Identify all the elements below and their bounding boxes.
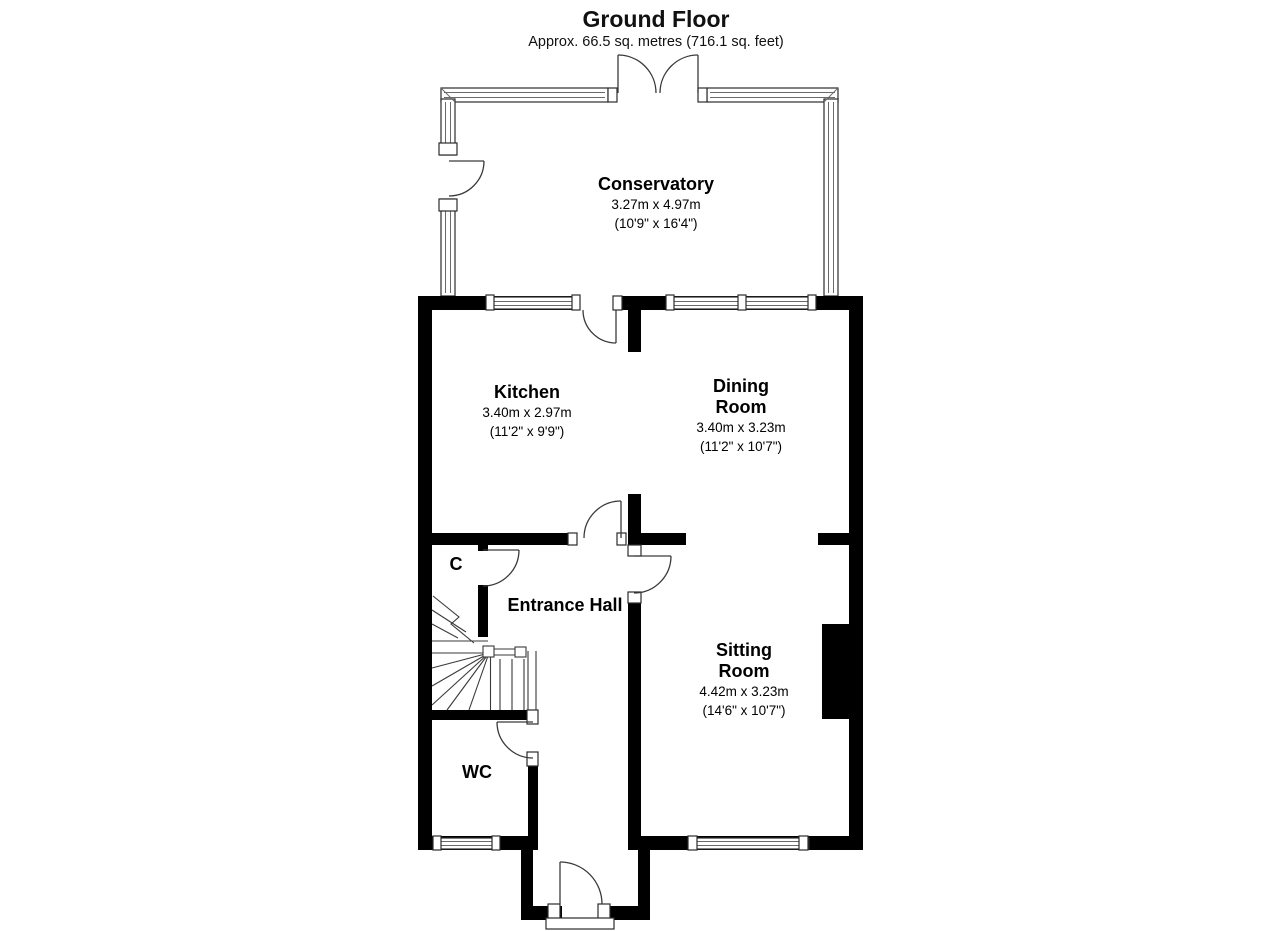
dining-sitting-stub-left (641, 533, 686, 545)
front-door-threshold (546, 918, 614, 929)
stair-handrail (483, 646, 526, 657)
wc-hall-divider (528, 766, 538, 850)
kitchen-dining-divider-lower (628, 494, 641, 545)
right-wall (849, 296, 863, 850)
window-cap (433, 836, 441, 850)
cupboard-door (483, 550, 519, 586)
kitchen-window (490, 297, 576, 309)
front-door (560, 862, 602, 904)
room-dims-imperial: (11'2" x 10'7") (696, 437, 786, 456)
room-name: Entrance Hall (500, 595, 630, 616)
stair-lower-treads (491, 651, 537, 710)
room-dims-imperial: (14'6" x 10'7") (699, 701, 789, 720)
room-dims-metric: 3.40m x 3.23m (696, 418, 786, 437)
dining-sitting-stub-right (818, 533, 849, 545)
sitting-door-jamb (628, 545, 641, 556)
room-name: WC (462, 762, 492, 783)
room-dims-imperial: (11'2" x 9'9") (482, 422, 571, 441)
wc-window (436, 838, 497, 849)
window-cap (492, 836, 500, 850)
stairs-wc-divider (432, 710, 538, 720)
room-label-sitting: Sitting Room 4.42m x 3.23m (14'6" x 10'7… (699, 640, 789, 720)
floor-plan-drawing (0, 0, 1280, 931)
newel-post (483, 646, 494, 657)
newel-post (515, 647, 526, 657)
conservatory-door-jamb (439, 199, 457, 211)
room-name: Dining Room (696, 376, 786, 418)
window-cap (738, 295, 746, 310)
kitchen-hall-divider (432, 533, 568, 545)
window-cap (666, 295, 674, 310)
hall-kitchen-door-jamb (568, 533, 577, 545)
window-cap (799, 836, 808, 850)
window-cap (808, 295, 816, 310)
kitchen-door-jamb (613, 296, 622, 310)
room-label-kitchen: Kitchen 3.40m x 2.97m (11'2" x 9'9") (482, 382, 571, 441)
kitchen-conservatory-door (583, 310, 616, 343)
french-door-jamb (608, 88, 617, 102)
room-name: Sitting Room (699, 640, 789, 682)
room-name: C (450, 554, 463, 575)
conservatory-side-door (449, 161, 484, 196)
hall-kitchen-door (584, 501, 621, 538)
glazing-top-right (707, 88, 838, 102)
room-dims-imperial: (10'9" x 16'4") (598, 214, 714, 233)
room-name: Kitchen (482, 382, 571, 403)
room-dims-metric: 3.27m x 4.97m (598, 195, 714, 214)
room-label-cupboard: C (450, 554, 463, 575)
stair-winders (432, 653, 489, 710)
glazing-top-left (441, 88, 608, 102)
french-doors (618, 55, 698, 93)
page-title: Ground Floor (583, 6, 730, 33)
window-cap (688, 836, 697, 850)
room-label-dining: Dining Room 3.40m x 3.23m (11'2" x 10'7"… (696, 376, 786, 456)
window-cap (486, 295, 494, 310)
room-dims-metric: 3.40m x 2.97m (482, 403, 571, 422)
left-wall (418, 296, 432, 850)
room-label-hall: Entrance Hall (500, 595, 630, 616)
glazing-left-lower (441, 199, 455, 296)
hall-sitting-divider (628, 601, 641, 850)
room-label-conservatory: Conservatory 3.27m x 4.97m (10'9" x 16'4… (598, 174, 714, 233)
hall-sitting-door (634, 556, 671, 593)
page-subtitle: Approx. 66.5 sq. metres (716.1 sq. feet) (528, 34, 784, 50)
cupboard-divider (478, 585, 488, 637)
sitting-window (691, 838, 809, 849)
wc-door-jamb (527, 752, 538, 766)
room-label-wc: WC (462, 762, 492, 783)
room-name: Conservatory (598, 174, 714, 195)
glazing-right (824, 99, 838, 296)
floor-plan: Ground Floor Approx. 66.5 sq. metres (71… (0, 0, 1280, 931)
room-dims-metric: 4.42m x 3.23m (699, 682, 789, 701)
kitchen-dining-divider-upper (628, 310, 641, 352)
french-door-jamb (698, 88, 707, 102)
conservatory-door-jamb (439, 143, 457, 155)
window-cap (572, 295, 580, 310)
chimney-breast (822, 624, 849, 719)
